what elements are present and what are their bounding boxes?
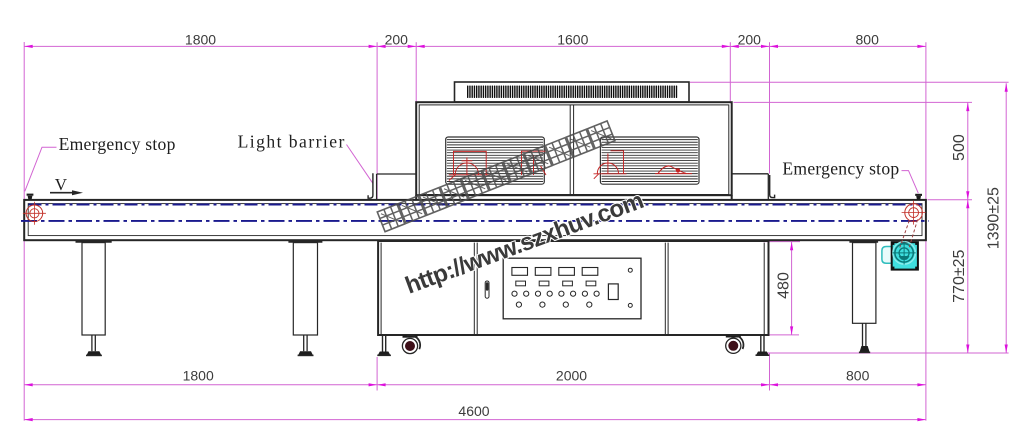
svg-text:1800: 1800 <box>185 31 216 47</box>
svg-text:1390±25: 1390±25 <box>986 187 1003 249</box>
svg-text:480: 480 <box>776 272 793 299</box>
svg-text:500: 500 <box>951 134 968 161</box>
svg-text:V: V <box>55 175 68 194</box>
svg-text:770±25: 770±25 <box>951 249 968 302</box>
svg-text:Emergency stop: Emergency stop <box>59 134 176 154</box>
svg-text:Light barrier: Light barrier <box>238 132 346 152</box>
svg-text:200: 200 <box>738 31 762 47</box>
svg-text:4600: 4600 <box>458 403 489 419</box>
svg-text:200: 200 <box>385 31 409 47</box>
svg-text:1600: 1600 <box>557 31 588 47</box>
svg-text:1800: 1800 <box>183 368 214 384</box>
svg-text:800: 800 <box>846 368 870 384</box>
svg-text:Emergency stop: Emergency stop <box>782 159 899 179</box>
svg-text:800: 800 <box>856 31 880 47</box>
svg-text:2000: 2000 <box>556 368 587 384</box>
